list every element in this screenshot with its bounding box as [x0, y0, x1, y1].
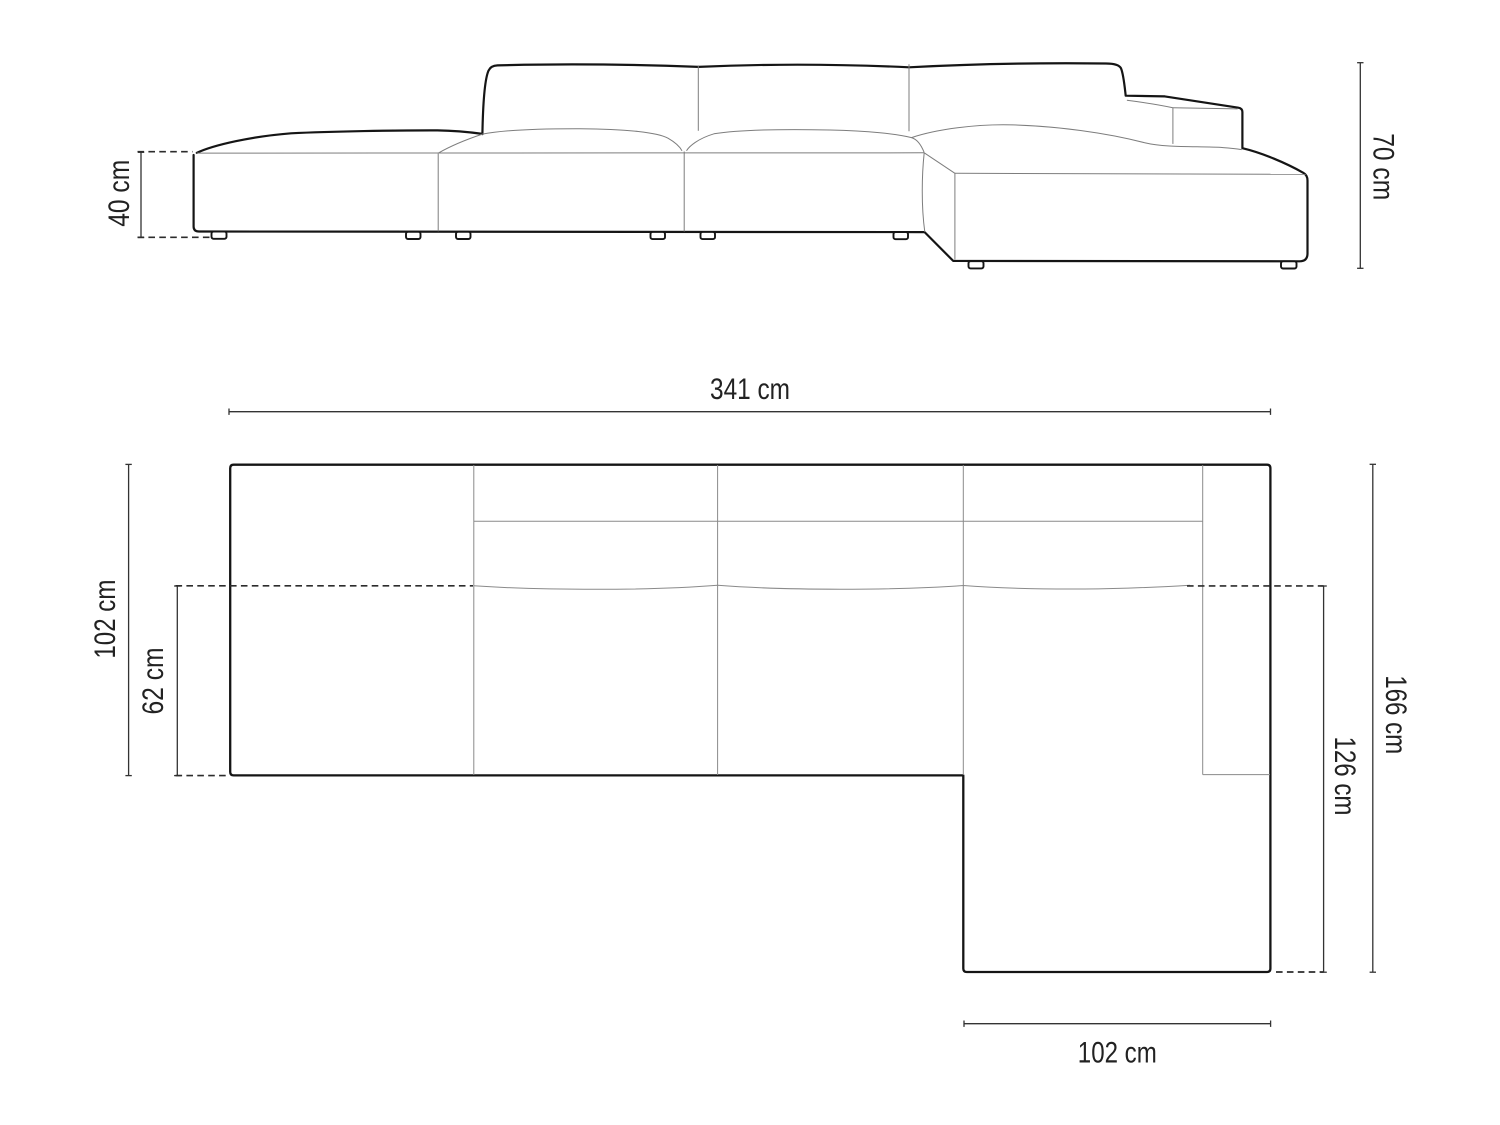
- svg-text:40 cm: 40 cm: [103, 160, 136, 227]
- svg-text:166 cm: 166 cm: [1379, 675, 1412, 754]
- svg-text:341 cm: 341 cm: [710, 373, 790, 406]
- svg-text:62 cm: 62 cm: [137, 648, 170, 715]
- svg-text:126 cm: 126 cm: [1328, 737, 1361, 816]
- svg-text:102 cm: 102 cm: [1078, 1037, 1157, 1070]
- svg-text:70 cm: 70 cm: [1367, 133, 1400, 200]
- svg-text:102 cm: 102 cm: [89, 580, 122, 659]
